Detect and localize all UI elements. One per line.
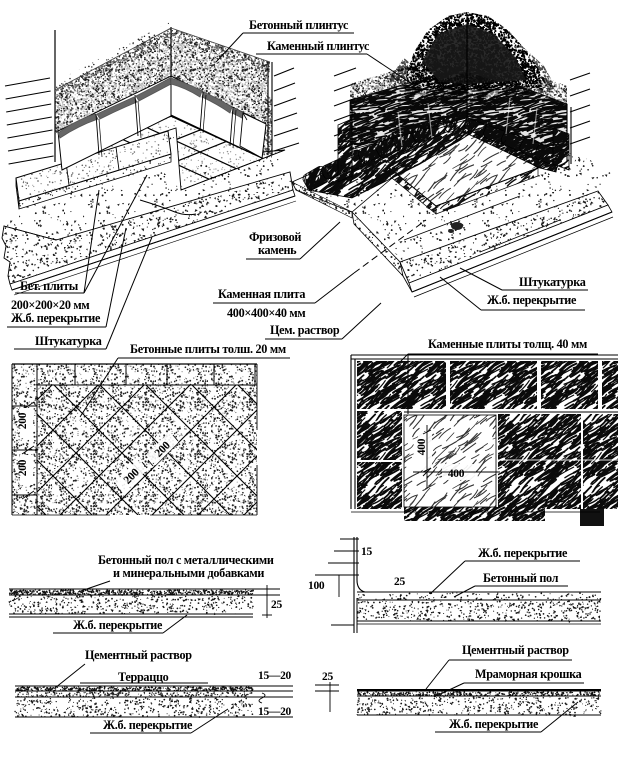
- svg-text:Терраццо: Терраццо: [118, 670, 169, 684]
- svg-text:200×200×20 мм: 200×200×20 мм: [11, 298, 89, 312]
- svg-text:Цем. раствор: Цем. раствор: [270, 323, 340, 337]
- svg-text:Бетонный пол с металлическими: Бетонный пол с металлическими: [98, 553, 274, 567]
- svg-text:Бетонный плинтус: Бетонный плинтус: [249, 18, 349, 32]
- svg-text:Бетонные плиты толш. 20 мм: Бетонные плиты толш. 20 мм: [130, 342, 286, 356]
- svg-text:400: 400: [416, 438, 428, 455]
- svg-text:Каменный плинтус: Каменный плинтус: [267, 39, 370, 53]
- svg-text:Каменная плита: Каменная плита: [218, 287, 305, 301]
- svg-text:25: 25: [271, 599, 282, 611]
- svg-text:Ж.б. перекрытие: Ж.б. перекрытие: [487, 293, 577, 307]
- svg-text:Ж.б. перекрытие: Ж.б. перекрытие: [11, 311, 101, 325]
- svg-text:Ж.б. перекрытие: Ж.б. перекрытие: [103, 718, 193, 732]
- svg-text:Штукатурка: Штукатурка: [519, 275, 586, 289]
- svg-text:Фризовой: Фризовой: [249, 230, 301, 244]
- svg-text:Каменные плиты толщ. 40 мм: Каменные плиты толщ. 40 мм: [428, 337, 587, 351]
- svg-text:200: 200: [17, 459, 29, 476]
- svg-text:100: 100: [308, 580, 325, 592]
- svg-text:Бет. плиты: Бет. плиты: [20, 279, 79, 293]
- svg-text:200: 200: [17, 412, 29, 429]
- svg-text:25: 25: [394, 576, 405, 588]
- svg-text:Ж.б. перекрытие: Ж.б. перекрытие: [73, 618, 163, 632]
- svg-text:15: 15: [361, 546, 372, 558]
- svg-text:камень: камень: [258, 243, 297, 257]
- svg-text:400: 400: [448, 468, 465, 480]
- svg-text:Ж.б. перекрытие: Ж.б. перекрытие: [478, 546, 568, 560]
- svg-text:15—20: 15—20: [258, 706, 292, 718]
- svg-text:15—20: 15—20: [258, 670, 292, 682]
- svg-text:Цементный раствор: Цементный раствор: [85, 648, 192, 662]
- svg-text:и минеральными добавками: и минеральными добавками: [113, 566, 264, 580]
- svg-text:400×400×40 мм: 400×400×40 мм: [227, 306, 305, 320]
- svg-text:Штукатурка: Штукатурка: [35, 334, 102, 348]
